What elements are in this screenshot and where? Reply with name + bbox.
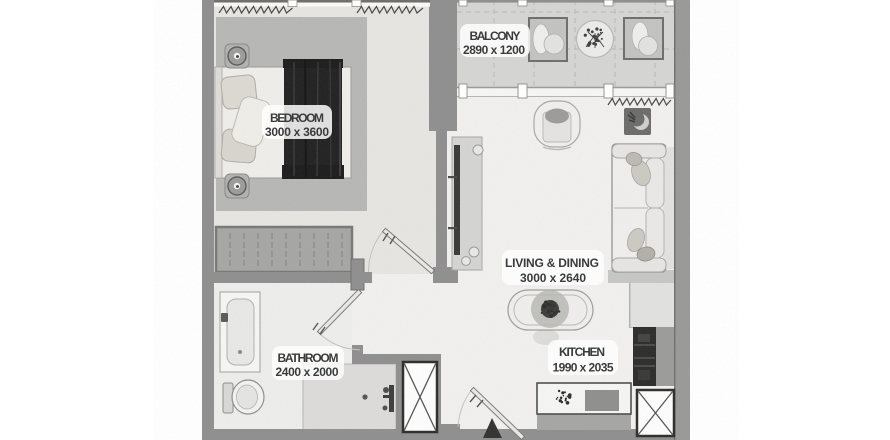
- svg-text:1990 x 2035: 1990 x 2035: [553, 361, 614, 375]
- svg-text:LIVING & DINING: LIVING & DINING: [505, 256, 599, 270]
- svg-text:KITCHEN: KITCHEN: [559, 345, 605, 359]
- svg-text:3000 x 3600: 3000 x 3600: [265, 125, 329, 139]
- svg-text:BATHROOM: BATHROOM: [278, 351, 339, 365]
- svg-text:BALCONY: BALCONY: [470, 29, 521, 43]
- svg-text:BEDROOM: BEDROOM: [270, 111, 324, 125]
- svg-text:3000 x 2640: 3000 x 2640: [520, 271, 586, 285]
- svg-text:2400 x 2000: 2400 x 2000: [276, 365, 339, 379]
- svg-text:2890 x 1200: 2890 x 1200: [463, 43, 525, 57]
